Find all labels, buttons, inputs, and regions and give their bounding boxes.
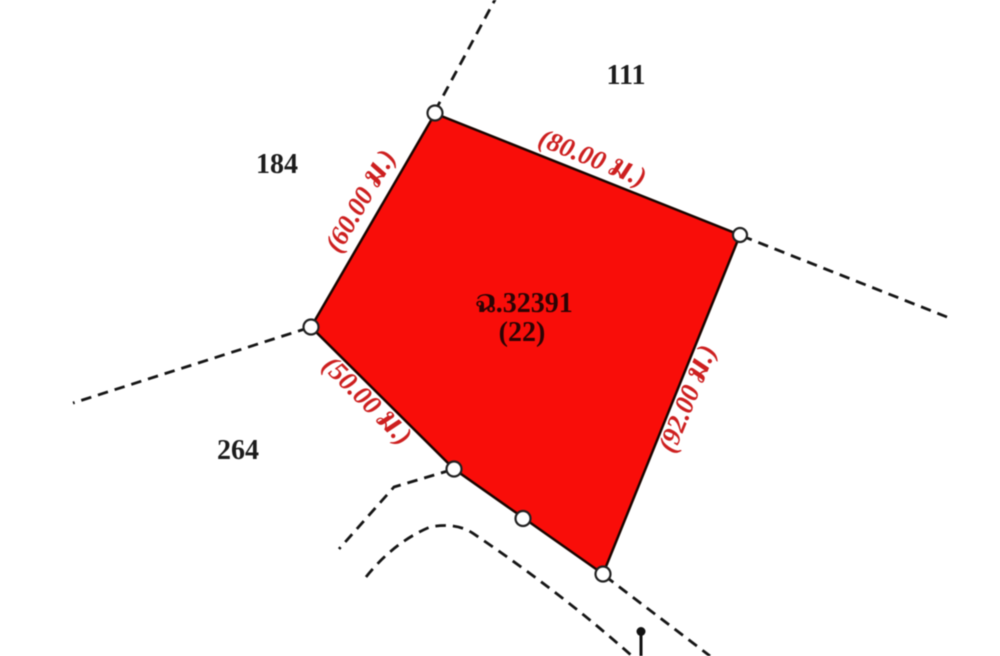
svg-text:(22): (22) bbox=[499, 317, 546, 348]
svg-text:.32391: .32391 bbox=[496, 288, 573, 319]
svg-text:111: 111 bbox=[607, 60, 646, 91]
svg-text:264: 264 bbox=[217, 435, 259, 466]
svg-text:184: 184 bbox=[256, 149, 298, 180]
